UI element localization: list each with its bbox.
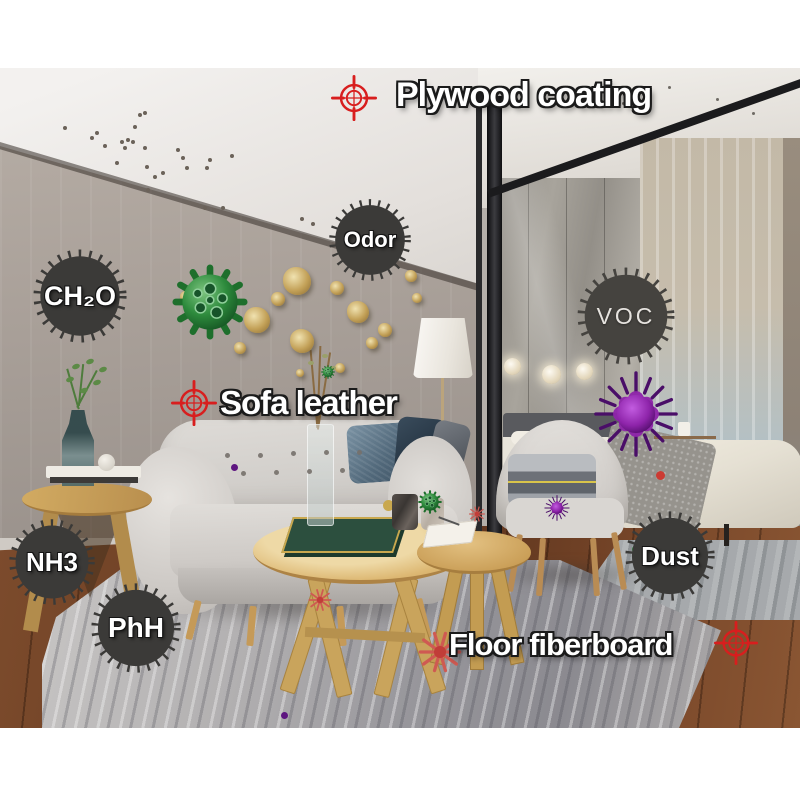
wall-dot [138, 113, 142, 117]
wall-dot [176, 148, 180, 152]
ceiling-dot [716, 98, 719, 101]
gold-flower-ornament [271, 292, 285, 306]
badge-nh3: NH3 [7, 517, 97, 607]
sofa-button [324, 450, 329, 455]
gold-flower-ornament [330, 281, 344, 295]
wall-dot [133, 125, 137, 129]
gold-flower-ornament [347, 301, 369, 323]
wall-dot [153, 175, 157, 179]
badge-nh3-label: NH3 [7, 517, 97, 607]
wall-dot [131, 140, 135, 144]
callout-plywood-coating: Plywood coating [396, 76, 651, 115]
coral-particle-red-small [307, 587, 333, 613]
virus-particle-purple-small [544, 495, 570, 521]
gold-flower-ornament [412, 293, 422, 303]
wall-dot [115, 161, 119, 165]
decor-ball [98, 454, 115, 471]
crosshair-icon [331, 75, 377, 121]
badge-dust-label: Dust [623, 509, 717, 603]
sofa-button [307, 469, 312, 474]
wall-dot [126, 138, 130, 142]
floor-lamp-shade [413, 318, 473, 378]
badge-odor-label: Odor [327, 197, 413, 283]
wall-dot [143, 111, 147, 115]
badge-ch2o-label: CH₂O [31, 247, 129, 345]
virus-particle-green [172, 264, 248, 340]
marble-tray [281, 517, 405, 553]
side-table-top [22, 483, 152, 516]
gold-flower-ornament [335, 363, 345, 373]
red-dot-particle [656, 471, 665, 480]
wall-dot [181, 156, 185, 160]
virus-particle-green-small [418, 490, 442, 514]
sofa-button [274, 470, 279, 475]
gold-flower-ornament [234, 342, 246, 354]
wall-dot [161, 171, 165, 175]
virus-particle-purple [593, 371, 679, 457]
wall-dot [300, 217, 304, 221]
gold-flower-ornament [366, 337, 378, 349]
dark-marble-cup [392, 494, 418, 530]
wall-dot [311, 222, 315, 226]
pendant-light [542, 365, 561, 384]
tall-glass-vase [307, 424, 334, 526]
sofa-button [291, 451, 296, 456]
badge-phh: PhH [89, 581, 183, 675]
sofa-button [225, 453, 230, 458]
badge-voc: VOC [575, 265, 677, 367]
badge-dust: Dust [623, 509, 717, 603]
wall-dot [205, 166, 209, 170]
callout-sofa-leather: Sofa leather [220, 384, 397, 422]
crosshair-icon [714, 621, 758, 665]
gold-flower-ornament [296, 369, 304, 377]
badge-odor: Odor [327, 197, 413, 283]
sofa-button [357, 450, 362, 455]
wall-dot [120, 140, 124, 144]
bed-cup [678, 422, 690, 436]
wall-dot [221, 206, 225, 210]
wall-dot [208, 158, 212, 162]
dark-book [50, 477, 138, 483]
ceiling-dot [752, 112, 755, 115]
wall-dot [63, 126, 67, 130]
gold-flower-ornament [378, 323, 392, 337]
coral-particle-red-tiny [468, 505, 486, 523]
wall-dot [203, 206, 207, 210]
gold-flower-ornament [290, 329, 314, 353]
crosshair-icon [171, 380, 217, 426]
sofa-button [258, 453, 263, 458]
purple-dot-particle [281, 712, 288, 719]
bed-leg [724, 524, 729, 546]
wall-dot [95, 131, 99, 135]
badge-voc-label: VOC [575, 265, 677, 367]
badge-ch2o: CH₂O [31, 247, 129, 345]
ceiling-dot [668, 86, 671, 89]
pendant-light [504, 358, 521, 375]
sofa-button [241, 471, 246, 476]
sofa-button [340, 468, 345, 473]
gold-flower-ornament [283, 267, 311, 295]
callout-floor-fiberboard: Floor fiberboard [449, 627, 672, 663]
wall-dot [143, 146, 147, 150]
wall-dot [123, 146, 127, 150]
badge-phh-label: PhH [89, 581, 183, 675]
virus-particle-green-tiny [321, 365, 335, 379]
wall-dot [90, 136, 94, 140]
dried-leaf [308, 361, 314, 365]
wall-dot [230, 154, 234, 158]
dried-leaf [322, 354, 328, 358]
wall-dot [146, 188, 150, 192]
wall-dot [185, 166, 189, 170]
annotated-room-image: Plywood coating Sofa leather Floor fiber… [0, 0, 800, 800]
wall-dot [145, 165, 149, 169]
purple-dot-particle [231, 464, 238, 471]
wall-dot [103, 144, 107, 148]
